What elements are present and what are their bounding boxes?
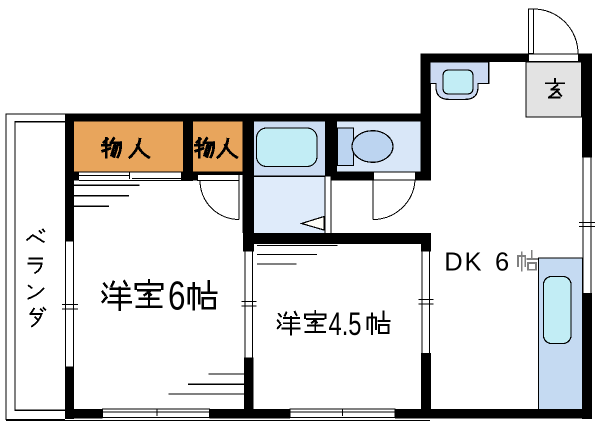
svg-text:6: 6 — [495, 248, 509, 276]
svg-text:D: D — [444, 248, 462, 276]
svg-text:4.5: 4.5 — [329, 306, 362, 342]
svg-text:6: 6 — [168, 273, 186, 319]
svg-text:K: K — [465, 248, 482, 276]
